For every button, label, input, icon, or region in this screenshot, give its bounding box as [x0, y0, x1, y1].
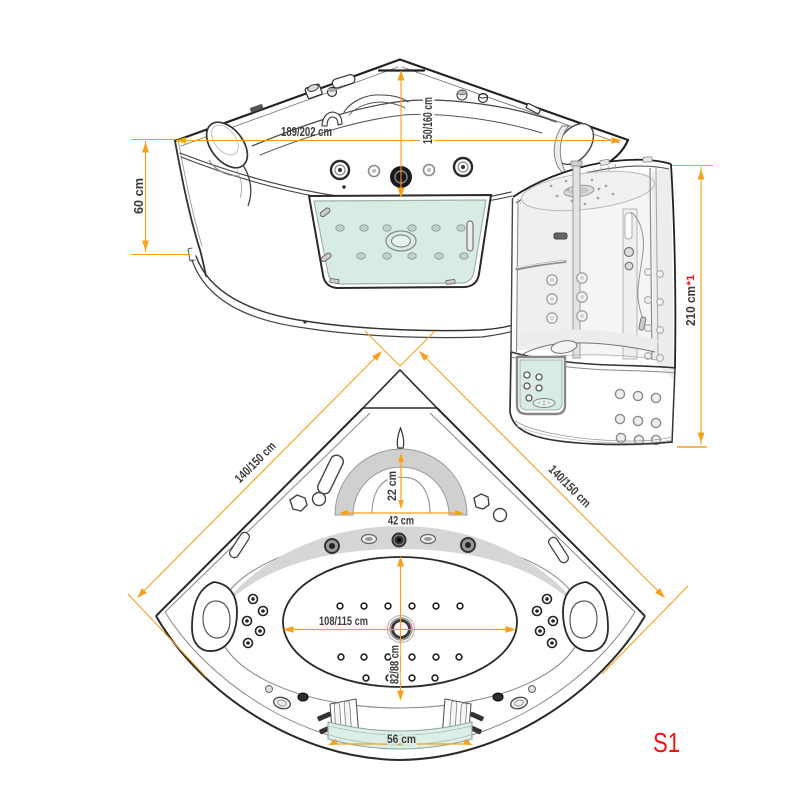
svg-text:108/115 cm: 108/115 cm — [319, 614, 368, 628]
svg-text:22 cm: 22 cm — [385, 471, 399, 501]
svg-text:210 cm: 210 cm — [683, 286, 698, 326]
svg-text:56 cm: 56 cm — [387, 732, 416, 746]
svg-text:42 cm: 42 cm — [388, 514, 414, 528]
svg-text:82/88 cm: 82/88 cm — [388, 645, 402, 684]
svg-text:150/160 cm: 150/160 cm — [421, 97, 435, 144]
svg-text:S1: S1 — [653, 727, 680, 758]
svg-text:*1: *1 — [685, 275, 697, 286]
svg-text:60 cm: 60 cm — [132, 178, 146, 214]
svg-text:189/202 cm: 189/202 cm — [281, 125, 332, 139]
